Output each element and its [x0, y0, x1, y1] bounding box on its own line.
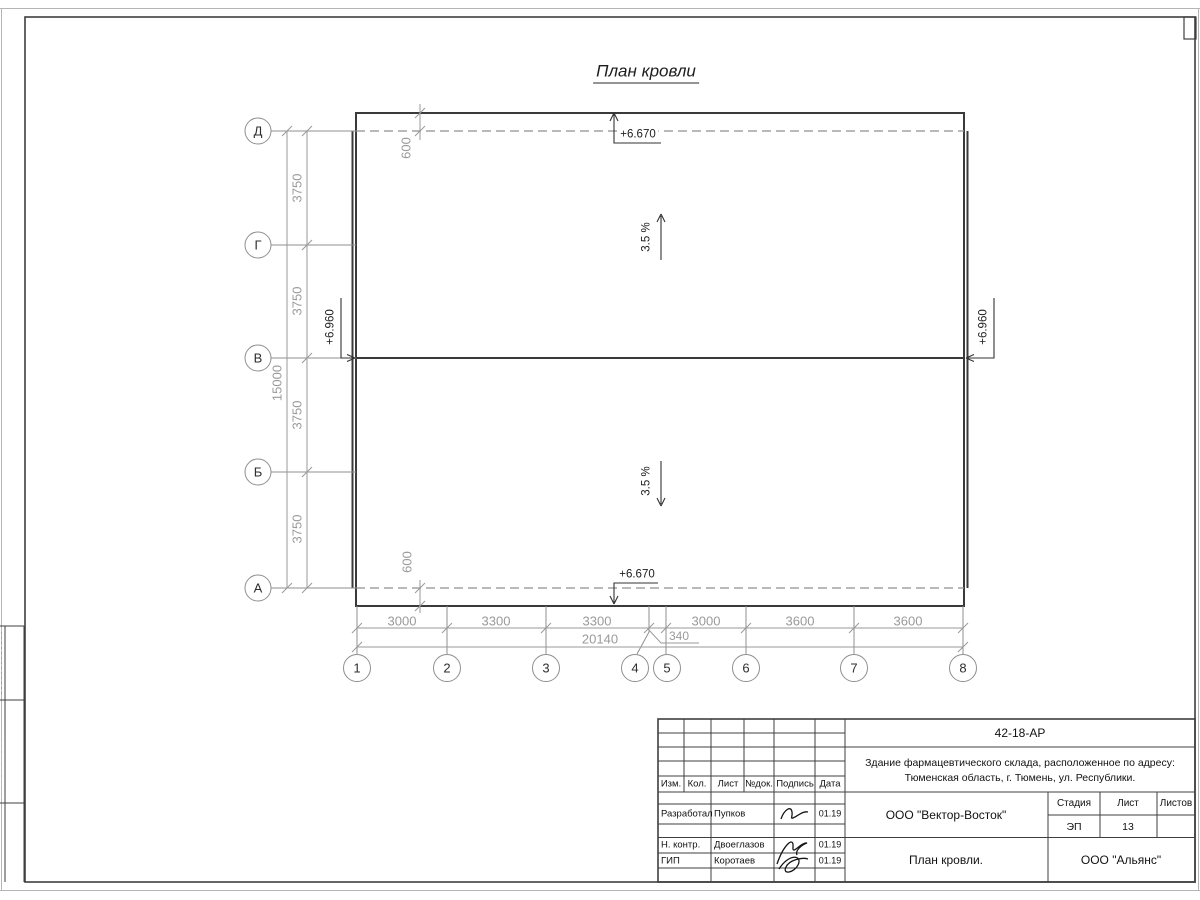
col-header-ndok: №док.: [745, 779, 773, 789]
dim-left-segment: 3750: [291, 287, 304, 316]
bottom-dimension-lines: [352, 623, 968, 652]
dim-bottom-segment: 3600: [894, 615, 923, 628]
dim-overhang-top: 600: [400, 137, 413, 159]
contractor-name: ООО "Вектор-Восток": [886, 809, 1007, 821]
col-header-podpis: Подпись: [776, 779, 814, 789]
elev-bottom-leader: [610, 583, 658, 604]
axis-label-a: А: [254, 582, 263, 595]
bottom-axis-lines: [344, 606, 977, 682]
row-date: 01.19: [819, 856, 842, 865]
axis-label-8: 8: [959, 662, 966, 675]
roof-outline: [353, 113, 968, 606]
row-date: 01.19: [819, 810, 842, 819]
dim-bottom-segment: 3600: [786, 615, 815, 628]
sheet-value: 13: [1122, 821, 1134, 832]
sheet-label: Лист: [1117, 799, 1139, 809]
row-role: Разработал: [661, 809, 713, 819]
elevation-ridge-right: +6.960: [978, 307, 990, 347]
row-name: Двоеглазов: [714, 840, 765, 850]
slope-arrow-down: [657, 461, 665, 506]
dim-bottom-segment: 3300: [482, 615, 511, 628]
axis-label-4: 4: [631, 662, 638, 675]
elevation-top: +6.670: [618, 129, 658, 141]
left-filing-table: [0, 626, 24, 882]
slope-label-bottom: 3.5 %: [641, 466, 653, 495]
sheets-label: Листов: [1160, 799, 1193, 809]
corner-stamp-box: [1184, 17, 1196, 39]
axis-label-1: 1: [353, 662, 360, 675]
dim-left-segment: 3750: [291, 515, 304, 544]
dim-left-segment: 3750: [291, 174, 304, 203]
doc-number: 42-18-АР: [995, 727, 1046, 739]
col-header-kol: Кол.: [688, 779, 707, 789]
axis-label-6: 6: [742, 662, 749, 675]
dim-bottom-segment: 3000: [692, 615, 721, 628]
axis-label-g: Г: [254, 239, 261, 252]
dim-bottom-segment: 3300: [583, 615, 612, 628]
axis-label-5: 5: [663, 662, 670, 675]
dim-left-segment: 3750: [291, 401, 304, 430]
col-header-list: Лист: [718, 779, 739, 789]
drawing-title: План кровли.: [909, 854, 983, 866]
row-role: Н. контр.: [661, 840, 700, 850]
plan-title: План кровли: [593, 63, 699, 84]
signature-razrabotal: [781, 809, 808, 819]
signatures: [777, 809, 808, 872]
slope-label-top: 3.5 %: [641, 222, 653, 251]
row-name: Коротаев: [714, 856, 755, 866]
sheet-frame: [25, 17, 1196, 882]
company-name: ООО "Альянс": [1081, 854, 1161, 866]
axis-label-v: В: [254, 352, 263, 365]
dim-bottom-total: 20140: [582, 633, 618, 646]
parapet-dashed-lines: [356, 131, 964, 588]
col-header-data: Дата: [819, 779, 840, 789]
row-date: 01.19: [819, 841, 842, 850]
axis-label-2: 2: [443, 662, 450, 675]
drawing-sheet: План кровли Д Г В Б А 1 2 3 4 5 6 7 8 37…: [0, 0, 1200, 900]
col-header-izm: Изм.: [661, 779, 681, 789]
elevation-ridge-left: +6.960: [325, 307, 337, 347]
axis-label-d: Д: [254, 125, 263, 138]
dim-overhang-bottom: 600: [401, 551, 414, 573]
axis-label-7: 7: [850, 662, 857, 675]
stage-value: ЭП: [1066, 821, 1081, 832]
slope-arrow-up: [657, 214, 665, 260]
elevation-bottom: +6.670: [617, 569, 657, 581]
dim-bottom-segment: 3000: [388, 615, 417, 628]
row-role: ГИП: [661, 856, 680, 866]
axis-label-b: Б: [254, 466, 263, 479]
axis-label-3: 3: [542, 662, 549, 675]
stage-label: Стадия: [1057, 799, 1091, 809]
project-description-line2: Тюменская область, г. Тюмень, ул. Респуб…: [905, 773, 1136, 784]
dim-left-total: 15000: [271, 365, 284, 401]
dim-bottom-segment-340: 340: [668, 630, 690, 642]
slope-arrows: [657, 214, 665, 506]
row-name: Пупков: [714, 809, 745, 819]
signature-gip: [779, 857, 808, 872]
project-description-line1: Здание фармацевтического склада, располо…: [865, 758, 1175, 769]
